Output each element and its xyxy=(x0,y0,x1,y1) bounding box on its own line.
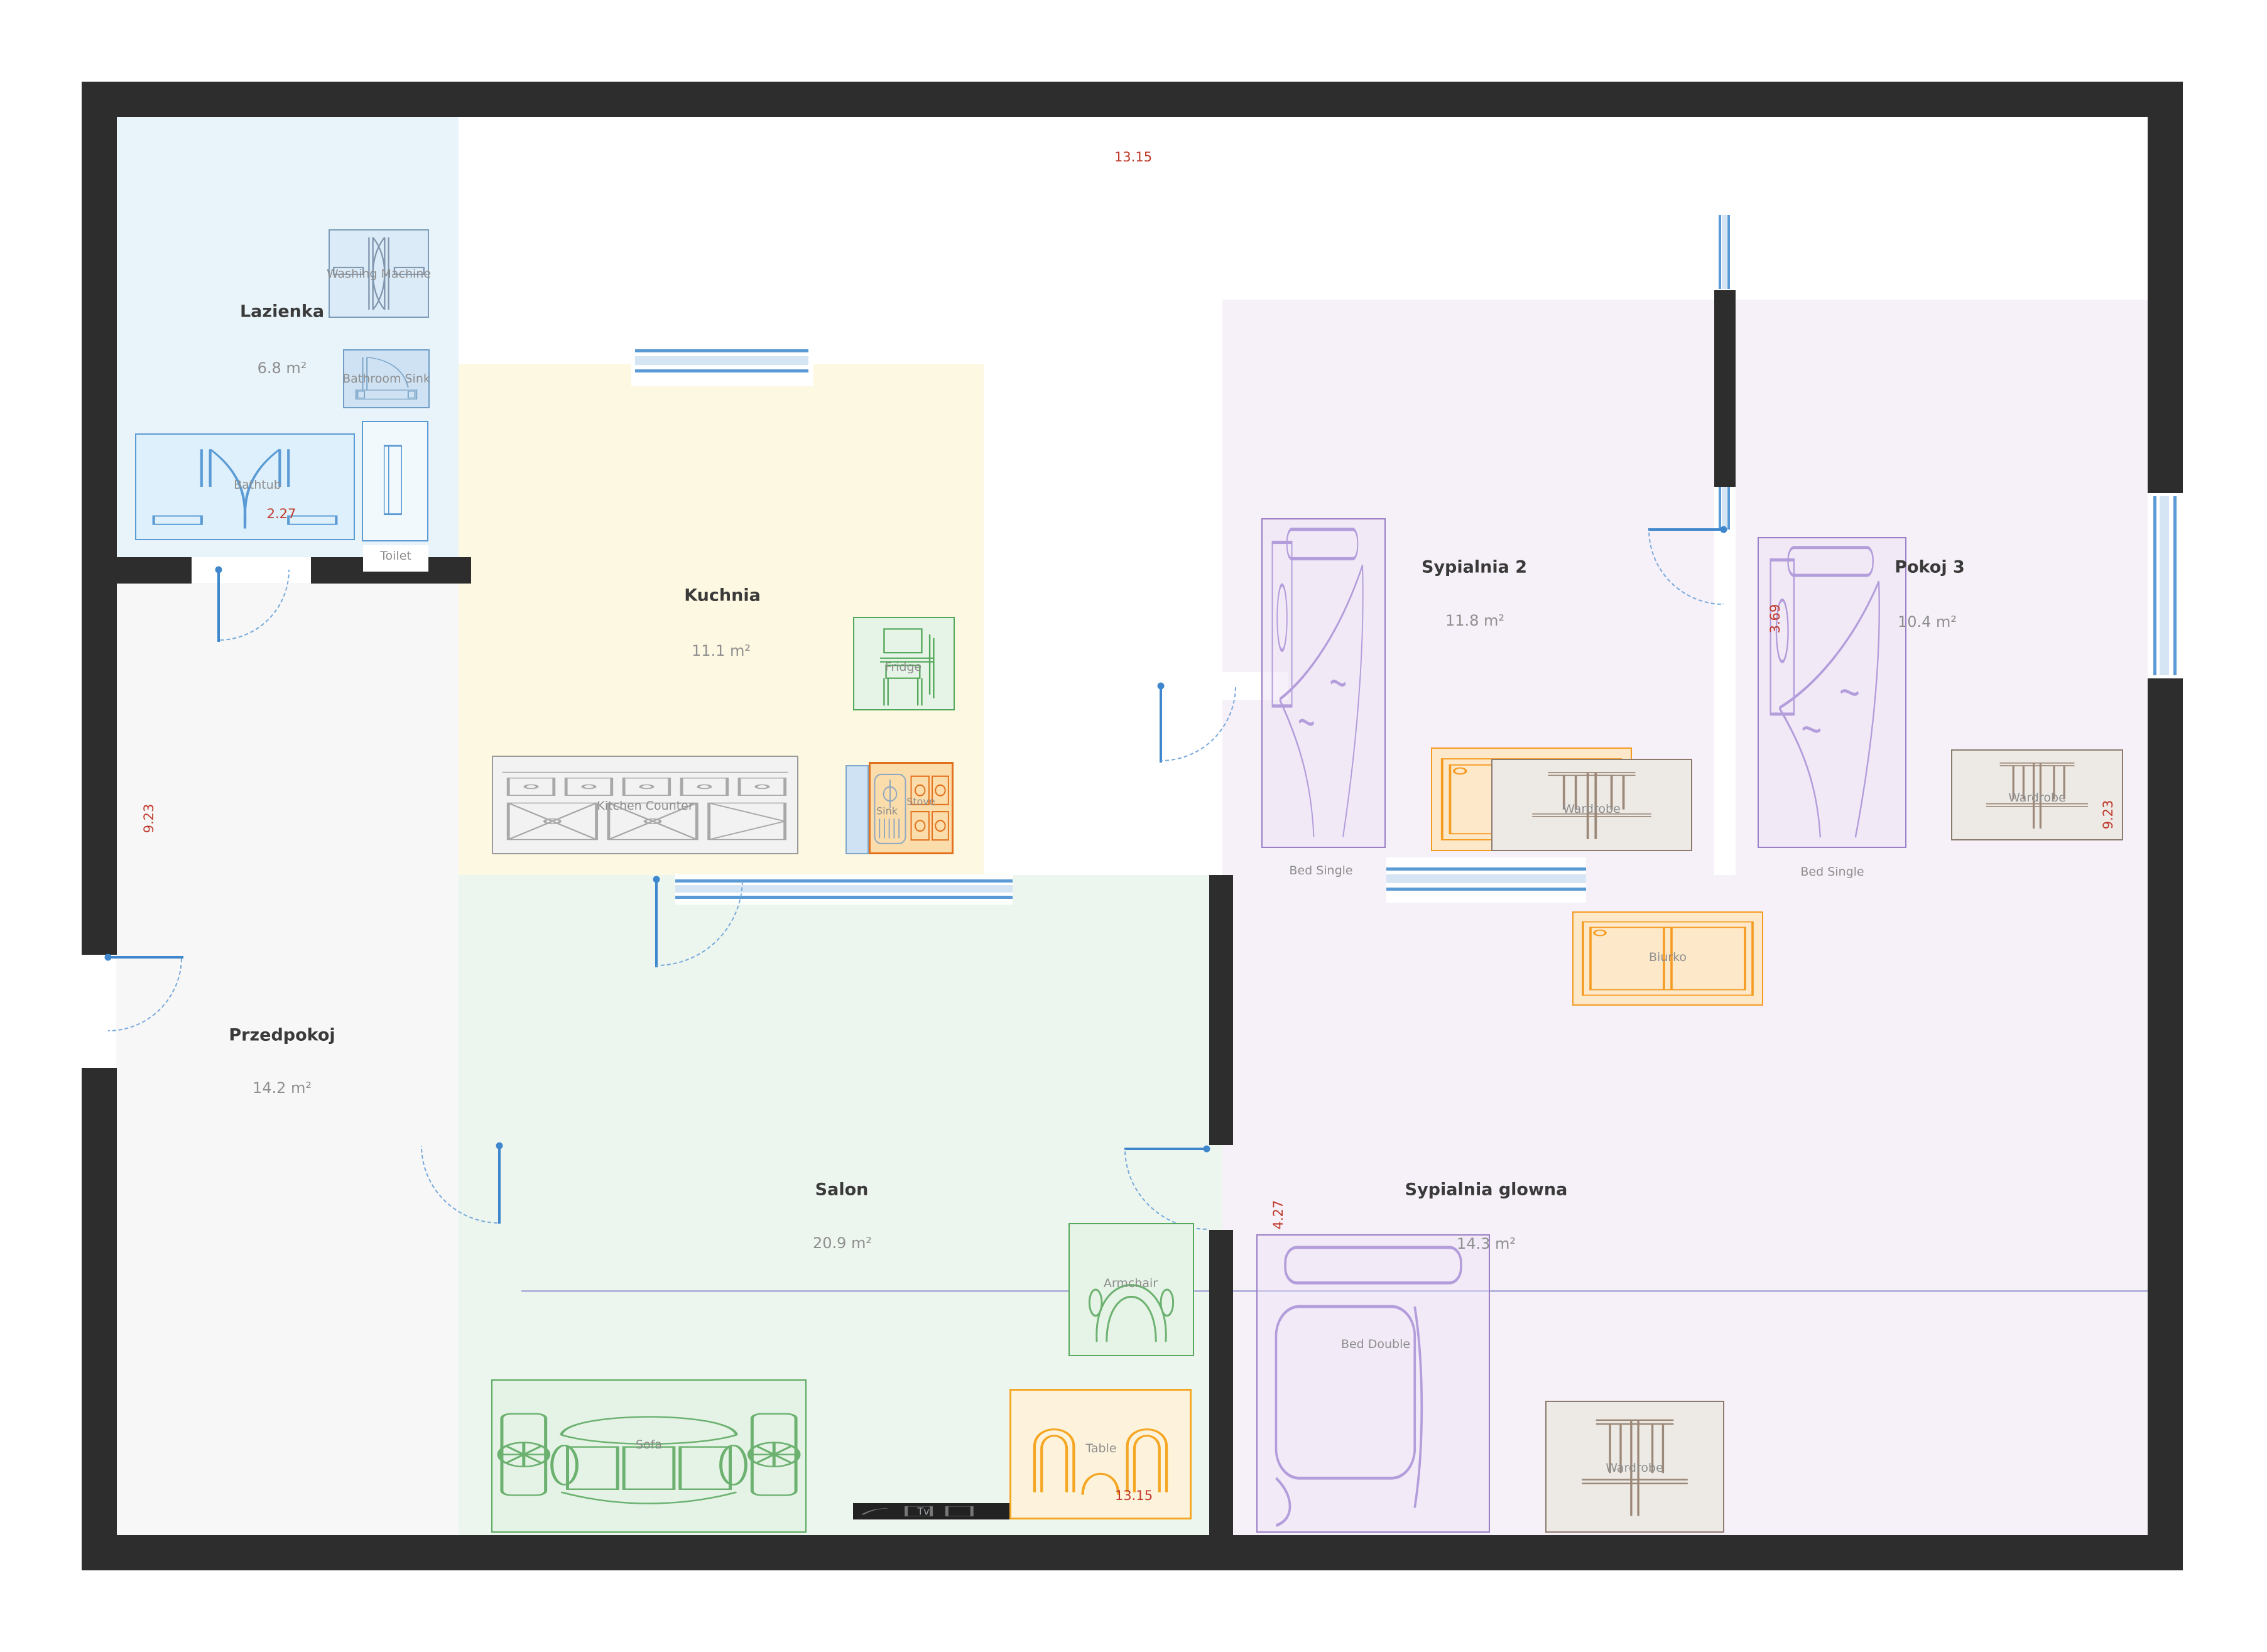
window-right-wall-line xyxy=(2173,496,2177,675)
window-bedroom-divider-line xyxy=(1727,487,1730,530)
bathroom-door-hinge xyxy=(215,567,222,573)
bed-single-icon xyxy=(1759,538,1905,847)
window-top-kitchen-line xyxy=(635,369,808,372)
window-bedroom-divider-line xyxy=(1719,487,1721,530)
window-corridor-upper-line xyxy=(1727,215,1730,289)
biurko-label: Biurko xyxy=(1649,950,1687,964)
bed-single-pokoj3-label: Bed Single xyxy=(1800,865,1864,879)
wall-left-upper xyxy=(82,82,117,955)
window-sypialnia2-line xyxy=(1386,867,1586,871)
lazienka-area: 6.8 m² xyxy=(258,359,307,377)
tv-icon xyxy=(853,1503,1009,1519)
window-top-kitchen-band xyxy=(635,356,808,365)
wall-right-lower xyxy=(2148,678,2183,1570)
window-corridor-upper-band xyxy=(1722,215,1727,289)
salon-area: 20.9 m² xyxy=(813,1234,872,1252)
sink-label: Sink xyxy=(876,805,898,817)
window-bedroom-divider-band xyxy=(1722,487,1727,530)
pokoj3-door-hinge xyxy=(1721,526,1727,533)
kitchen-cabinet xyxy=(845,765,869,854)
wardrobe-sypialnia2-label: Wardrobe xyxy=(1563,802,1621,816)
sofa xyxy=(491,1379,807,1533)
przedpokoj-title: Przedpokoj xyxy=(229,1026,335,1045)
przedpokoj-area: 14.2 m² xyxy=(253,1079,312,1097)
wall-left-lower xyxy=(82,1068,117,1570)
dim-bathroom: 2.27 xyxy=(267,506,296,521)
bed-single-sypialnia2 xyxy=(1261,518,1386,848)
kuchnia-area: 11.1 m² xyxy=(692,642,751,660)
dim-pokoj3-right: 9.23 xyxy=(2101,800,2116,830)
sypialnia-glowna-door-hinge xyxy=(1204,1146,1210,1153)
pokoj3-title: Pokoj 3 xyxy=(1895,558,1965,577)
window-sypialnia2-line xyxy=(1386,888,1586,891)
wall-top xyxy=(82,82,2183,117)
sypialnia2-area: 11.8 m² xyxy=(1445,612,1504,629)
sypialnia-glowna-title: Sypialnia glowna xyxy=(1405,1180,1568,1200)
bed-single-sypialnia2-label: Bed Single xyxy=(1289,864,1352,878)
bathroom-sink-label: Bathroom Sink xyxy=(342,372,430,386)
tv xyxy=(853,1503,1009,1519)
toilet-label: Toilet xyxy=(380,549,411,563)
kuchnia-title: Kuchnia xyxy=(684,586,761,606)
pokoj3-area: 10.4 m² xyxy=(1898,613,1957,631)
floor-plan: Washing Machine Bathroom Sink Bathtub xyxy=(0,0,2267,1652)
window-right-wall-band xyxy=(2160,496,2169,675)
kitchen-door-hinge xyxy=(653,876,660,883)
bed-double-icon xyxy=(1258,1236,1489,1531)
fridge-label: Fridge xyxy=(885,660,921,674)
lazienka-title: Lazienka xyxy=(240,302,324,322)
room-przedpokoj xyxy=(116,583,459,1539)
wall-bedrooms xyxy=(1714,289,1736,487)
wall-center-upper xyxy=(1209,875,1233,1145)
bed-single-icon xyxy=(1263,519,1384,847)
bed-single-pokoj3 xyxy=(1758,537,1906,848)
wardrobe-glowna-label: Wardrobe xyxy=(1606,1461,1663,1475)
bed-double-label: Bed Double xyxy=(1341,1337,1410,1351)
sofa-icon xyxy=(492,1381,805,1531)
dim-left: 9.23 xyxy=(141,804,156,834)
sofa-label: Sofa xyxy=(636,1438,662,1452)
dim-top: 13.15 xyxy=(1114,149,1152,165)
sypialnia-glowna-area: 14.3 m² xyxy=(1457,1235,1516,1253)
sypialnia2-title: Sypialnia 2 xyxy=(1422,558,1527,577)
washing-machine-label: Washing Machine xyxy=(327,267,431,281)
bed-double xyxy=(1256,1234,1490,1533)
wall-center-lower xyxy=(1209,1230,1233,1536)
dim-bottom: 13.15 xyxy=(1115,1488,1153,1503)
window-top-kitchen-line xyxy=(635,349,808,352)
armchair-label: Armchair xyxy=(1104,1276,1158,1290)
entrance-door-hinge xyxy=(105,954,112,961)
dim-sypialnia-glowna-height: 4.27 xyxy=(1271,1200,1286,1230)
sypialnia2-door-hinge xyxy=(1158,683,1165,690)
tv-label: Tv xyxy=(917,1506,929,1518)
bathtub-label: Bathtub xyxy=(234,478,281,492)
window-right-wall-line xyxy=(2153,496,2156,675)
wall-bath-a xyxy=(116,557,192,584)
window-sypialnia2-band xyxy=(1386,874,1586,883)
dim-pokoj3-height: 3.69 xyxy=(1768,604,1783,634)
window-corridor-upper-line xyxy=(1719,215,1721,289)
toilet xyxy=(362,421,428,541)
salon-title: Salon xyxy=(815,1180,869,1200)
wardrobe-pokoj3-label: Wardrobe xyxy=(2008,791,2066,805)
wall-bottom xyxy=(82,1535,2183,1570)
stove-label: Stove xyxy=(906,796,935,808)
salon-door-hinge xyxy=(496,1143,503,1149)
kitchen-counter-label: Kitchen Counter xyxy=(597,799,693,813)
toilet-icon xyxy=(363,422,427,540)
wall-right-upper xyxy=(2148,82,2183,493)
table-label: Table xyxy=(1085,1442,1116,1455)
